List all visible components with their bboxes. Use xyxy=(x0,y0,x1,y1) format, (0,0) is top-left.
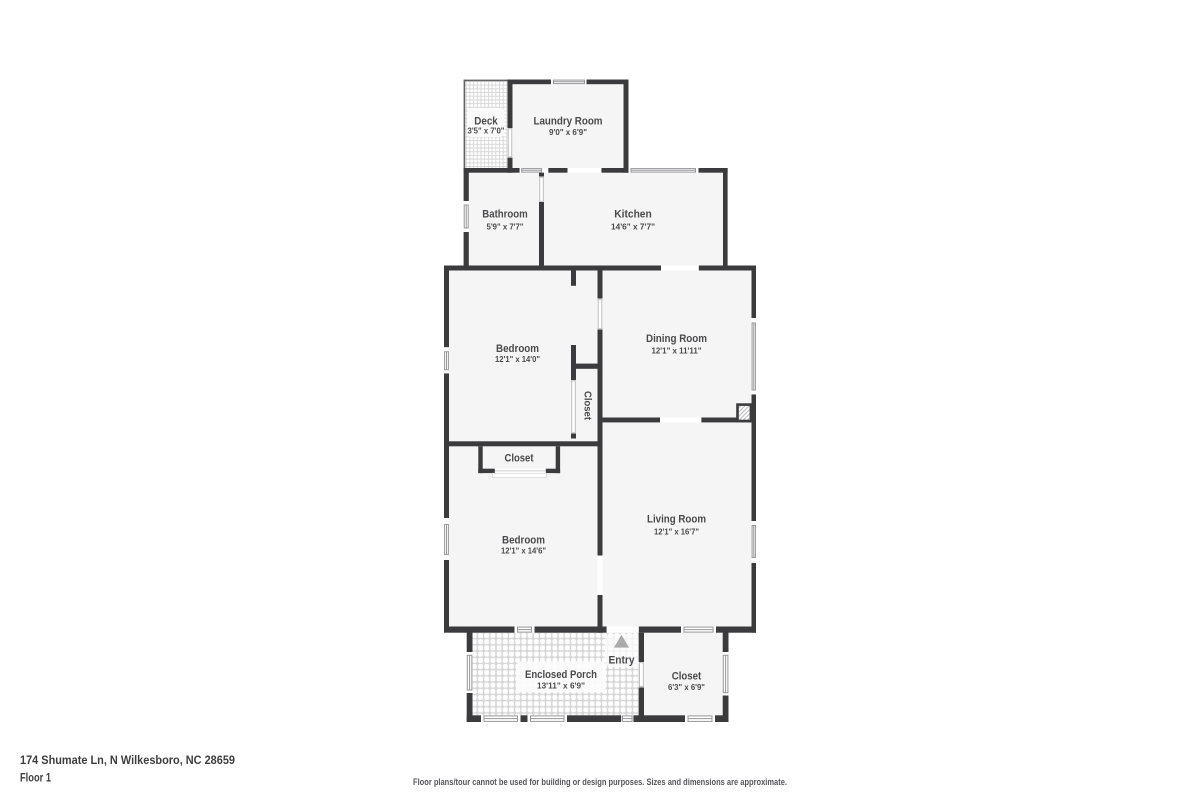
svg-text:9'0" x 6'9": 9'0" x 6'9" xyxy=(549,128,587,137)
svg-text:Bathroom: Bathroom xyxy=(482,209,528,221)
svg-text:Kitchen: Kitchen xyxy=(614,209,652,221)
svg-text:Laundry Room: Laundry Room xyxy=(534,116,603,128)
svg-text:Bedroom: Bedroom xyxy=(496,343,539,355)
svg-text:174 Shumate Ln, N Wilkesboro,: 174 Shumate Ln, N Wilkesboro, NC 28659 xyxy=(20,754,236,767)
svg-text:Closet: Closet xyxy=(672,671,702,683)
svg-text:Closet: Closet xyxy=(582,391,594,420)
svg-text:Dining Room: Dining Room xyxy=(646,333,707,345)
svg-text:12'1" x 11'11": 12'1" x 11'11" xyxy=(652,347,702,356)
svg-text:13'11" x 6'9": 13'11" x 6'9" xyxy=(537,682,585,691)
svg-text:Entry: Entry xyxy=(609,654,636,666)
svg-text:5'9" x 7'7": 5'9" x 7'7" xyxy=(487,222,524,231)
svg-text:12'1" x 14'6": 12'1" x 14'6" xyxy=(501,546,546,555)
svg-text:Closet: Closet xyxy=(505,453,534,465)
svg-text:Living Room: Living Room xyxy=(647,514,706,526)
svg-text:12'1" x 16'7": 12'1" x 16'7" xyxy=(654,528,699,537)
svg-text:14'6" x 7'7": 14'6" x 7'7" xyxy=(611,222,655,231)
svg-text:Floor plans/tour cannot be use: Floor plans/tour cannot be used for buil… xyxy=(413,777,787,787)
svg-text:Enclosed Porch: Enclosed Porch xyxy=(525,669,597,681)
svg-text:Floor 1: Floor 1 xyxy=(20,772,51,785)
svg-text:3'5" x 7'0": 3'5" x 7'0" xyxy=(468,126,505,135)
svg-text:Bedroom: Bedroom xyxy=(502,535,545,547)
svg-text:12'1" x 14'0": 12'1" x 14'0" xyxy=(495,355,540,364)
svg-text:6'3" x 6'9": 6'3" x 6'9" xyxy=(668,683,705,692)
